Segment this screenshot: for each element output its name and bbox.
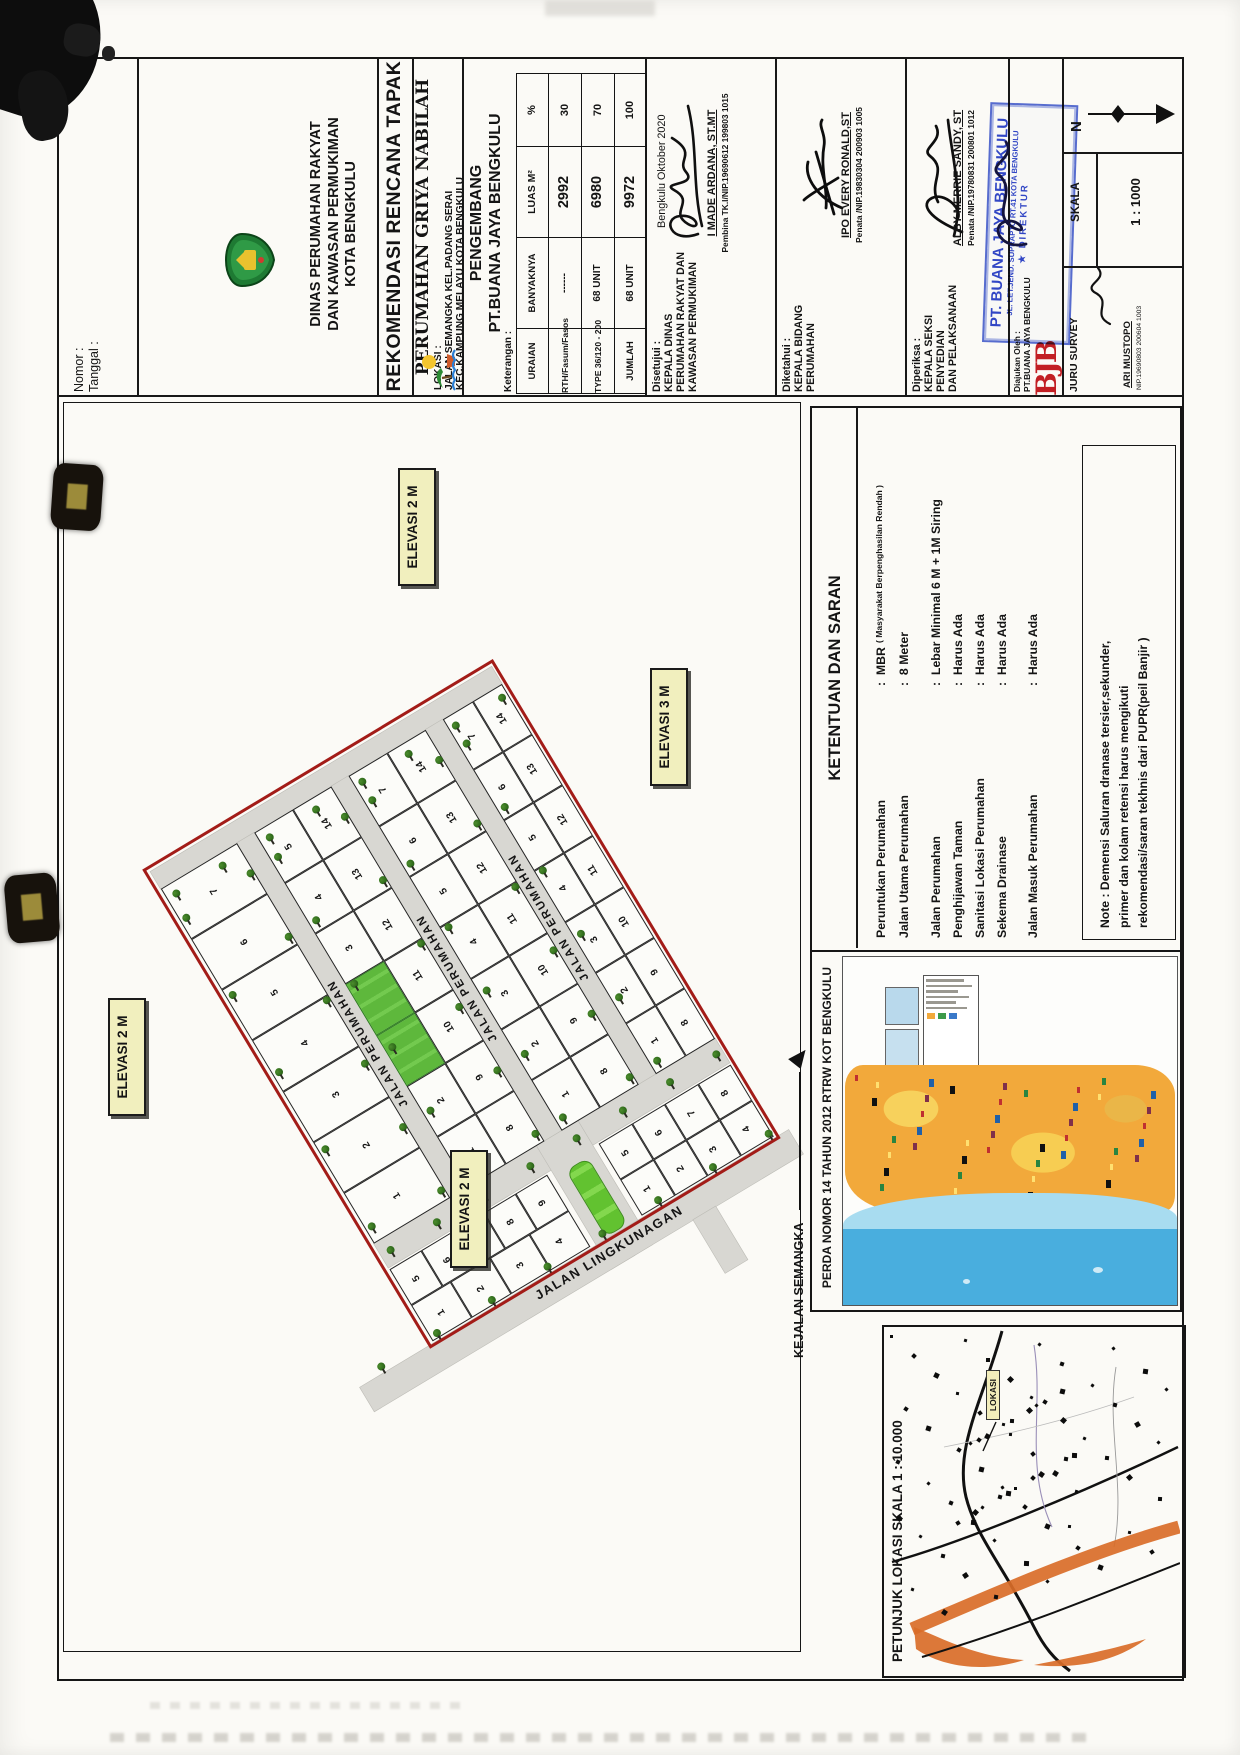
item-label: Peruntukan Perumahan [874, 686, 889, 938]
scale-value: 1 : 1000 [1128, 152, 1143, 252]
signer-nip: Pembina TK.I/NIP.19690612 199803 1015 [720, 64, 731, 282]
landuse-speck [929, 1079, 934, 1087]
divider [856, 406, 858, 948]
building-dot [964, 1339, 968, 1343]
table-cell: 68 UNIT [582, 238, 615, 329]
rtrw-sea [843, 1229, 1177, 1305]
ketentuan-item: Jalan Utama Perumahan : 8 Meter [897, 423, 912, 938]
building-dot [896, 1515, 903, 1522]
ketentuan-item: Jalan Perumahan : Lebar Minimal 6 M + 1M… [929, 423, 944, 938]
document-number-block: Nomor : Tanggal : [72, 302, 102, 392]
building-dot [971, 1520, 976, 1525]
sig-role: PERUMAHAN RAKYAT DAN [676, 240, 688, 392]
location-map-buildings [884, 1327, 1180, 1672]
building-dot [980, 1505, 984, 1509]
building-dot [948, 1500, 953, 1505]
building-dot [941, 1554, 946, 1559]
table-cell: TYPE 36/120 - 200 [582, 329, 615, 394]
divider [377, 57, 379, 395]
landuse-speck [999, 1099, 1002, 1105]
building-dot [992, 1538, 996, 1542]
building-dot [890, 1335, 893, 1338]
building-dot [1126, 1474, 1133, 1481]
building-dot [1059, 1361, 1064, 1366]
divider [137, 57, 139, 395]
building-dot [1009, 1433, 1012, 1436]
landuse-speck [921, 1111, 924, 1117]
building-dot [998, 1495, 1003, 1500]
building-dot [956, 1392, 959, 1395]
landuse-speck [995, 1115, 1000, 1123]
developer-label: PENGEMBANG [467, 56, 486, 390]
landuse-speck [1139, 1139, 1144, 1147]
landuse-speck [1040, 1144, 1045, 1152]
agency-line: KOTA BENGKULU [343, 58, 361, 390]
signer-nip: Penata /NIP.19780831 200801 1012 [966, 64, 977, 292]
city-emblem-box [224, 228, 276, 292]
building-dot [962, 1572, 969, 1579]
landuse-speck [1106, 1180, 1111, 1188]
keterangan-label: Keterangan : [503, 300, 515, 392]
lokasi-line: KEC.KAMPUNG MELAYU KOTA BENGKULU [455, 60, 466, 390]
building-dot [1134, 1421, 1141, 1428]
landuse-speck [872, 1098, 877, 1106]
sig-role: PENYEDIAN [936, 230, 948, 392]
signer-imade: I MADE ARDANA, ST.MT Pembina TK.I/NIP.19… [706, 64, 730, 282]
landuse-speck [1036, 1160, 1040, 1167]
island-dot [1093, 1267, 1103, 1273]
landuse-speck [1102, 1078, 1106, 1085]
note-text: Note : Demensi Saluran dranase tersier,s… [1096, 458, 1153, 928]
building-dot [955, 1520, 961, 1526]
agency-line: DINAS PERUMAHAN RAKYAT [308, 58, 326, 390]
sig-role: PERUMAHAN [806, 240, 818, 392]
building-dot [926, 1481, 930, 1485]
building-dot [903, 1406, 909, 1412]
landuse-speck [1147, 1107, 1151, 1114]
compass-label: N [1068, 92, 1086, 132]
building-dot [1029, 1395, 1033, 1399]
table-cell: 6980 [582, 147, 615, 238]
signature-director [986, 118, 1047, 258]
building-dot [1007, 1376, 1014, 1383]
agency-line: DAN KAWASAN PERMUKIMAN [326, 58, 344, 390]
item-value: Lebar Minimal 6 M + 1M Siring [929, 499, 944, 675]
building-dot [1030, 1451, 1036, 1457]
landuse-speck [954, 1188, 957, 1194]
elevation-badge: ELEVASI 2 M [398, 468, 436, 586]
building-dot [1060, 1417, 1067, 1424]
landuse-speck [876, 1082, 879, 1088]
item-label: Jalan Utama Perumahan [897, 686, 912, 938]
item-value: Harus Ada [951, 614, 966, 675]
building-dot [1083, 1437, 1087, 1441]
lokasi-line: JALAN SEMANGKA KEL.PADANG SERAI [444, 60, 455, 390]
building-dot [1002, 1423, 1006, 1427]
semangka-leader-line [799, 1072, 801, 1210]
ghost-text-artifact [150, 1702, 470, 1709]
sig-role: KEPALA SEKSI [924, 230, 936, 392]
elevation-badge: ELEVASI 2 M [450, 1150, 488, 1268]
table-cell: 30 [549, 74, 582, 147]
building-dot [911, 1353, 917, 1359]
col-header: % [517, 74, 549, 147]
building-dot [911, 1588, 915, 1592]
building-dot [1105, 1456, 1109, 1460]
signature-surveyor [1086, 260, 1121, 332]
titleblock-bottom-border [57, 395, 1183, 397]
building-dot [1143, 1369, 1149, 1375]
building-dot [1156, 1440, 1160, 1444]
building-dot [1044, 1523, 1051, 1530]
scanned-site-plan-document: Nomor : Tanggal : DINAS PERUMAHAN RAKYAT… [0, 0, 1240, 1755]
building-dot [978, 1466, 984, 1472]
table-cell: 70 [582, 74, 615, 147]
building-dot [895, 1459, 900, 1464]
landuse-speck [1069, 1119, 1073, 1126]
item-label: Sekema Drainase [995, 686, 1010, 938]
landuse-speck [991, 1131, 995, 1138]
building-dot [1064, 1457, 1069, 1462]
ketentuan-item: Peruntukan Perumahan : MBR ( Masyarakat … [874, 423, 889, 938]
surveyor-nip: NIP.19690803 200604 1003 [1136, 270, 1144, 390]
building-dot [1010, 1419, 1014, 1423]
note-line: rekomendasi/saran tekhnis dari PUPR(peil… [1134, 458, 1153, 928]
item-label: Jalan Perumahan [929, 686, 944, 938]
building-dot [1024, 1561, 1029, 1566]
building-dot [1026, 1407, 1033, 1414]
landuse-speck [1143, 1123, 1146, 1129]
landuse-speck [925, 1095, 929, 1102]
ketentuan-title: KETENTUAN DAN SARAN [826, 418, 845, 938]
table-cell: RTH/Fasum/Fasos [549, 329, 582, 394]
approval-label-disetujui: Disetujui : KEPALA DINAS PERUMAHAN RAKYA… [652, 240, 699, 392]
table-cell: ------ [549, 238, 582, 329]
building-dot [972, 1509, 979, 1516]
building-dot [1037, 1342, 1041, 1346]
punch-mark-artifact [50, 462, 104, 531]
table-cell: 68 UNIT [615, 238, 647, 329]
landuse-speck [1061, 1151, 1066, 1159]
building-dot [1006, 1491, 1012, 1497]
building-dot [1111, 1346, 1115, 1350]
building-dot [1000, 1485, 1004, 1489]
building-dot [1030, 1475, 1036, 1481]
building-dot [1128, 1531, 1132, 1535]
item-value: 8 Meter [897, 632, 912, 675]
note-line: Note : Demensi Saluran dranase tersier,s… [1096, 458, 1115, 928]
sig-role: KAWASAN PERMUKIMAN [688, 240, 700, 392]
building-dot [1038, 1471, 1045, 1478]
signer-nip: Penata /NIP.19830304 200903 1005 [854, 64, 865, 286]
lokasi-label: LOKASI : [433, 60, 444, 390]
building-dot [925, 1425, 931, 1431]
building-dot [1014, 1487, 1017, 1490]
ghost-text-artifact [110, 1733, 1090, 1742]
building-dot [1164, 1387, 1168, 1391]
map-thumbnail [885, 987, 919, 1025]
scale-label: SKALA [1070, 152, 1084, 252]
document-title: REKOMENDASI RENCANA TAPAK [383, 60, 406, 392]
building-dot [1068, 1525, 1071, 1528]
agency-name: DINAS PERUMAHAN RAKYAT DAN KAWASAN PERMU… [308, 58, 361, 390]
landuse-speck [1135, 1155, 1139, 1162]
item-label: Sanitasi Lokasi Perumahan [973, 686, 988, 938]
map-thumbnail [885, 1029, 919, 1067]
col-header: BANYAKNYA [517, 238, 549, 329]
building-dot [1097, 1564, 1103, 1570]
north-arrow-icon [1086, 100, 1176, 128]
area-table-wrap: URAIAN BANYAKNYA LUAS M² % RTH/Fasum/Fas… [516, 78, 646, 394]
signer-name: ALBY MERRIE SANDY, ST [952, 64, 966, 292]
landuse-speck [966, 1140, 969, 1146]
building-dot [968, 1441, 972, 1445]
landuse-speck [888, 1152, 891, 1158]
signer-alby: ALBY MERRIE SANDY, ST Penata /NIP.197808… [952, 64, 976, 292]
punch-mark-artifact [3, 872, 61, 944]
building-dot [1052, 1470, 1059, 1477]
landuse-speck [1003, 1083, 1007, 1090]
building-dot [1090, 1383, 1094, 1387]
landuse-speck [958, 1172, 962, 1179]
landuse-speck [1098, 1094, 1101, 1100]
bengkulu-city-emblem [224, 228, 276, 292]
landuse-speck [1024, 1090, 1028, 1097]
building-dot [1113, 1403, 1118, 1408]
building-dot [976, 1437, 982, 1443]
location-block: LOKASI : JALAN SEMANGKA KEL.PADANG SERAI… [433, 60, 467, 390]
signature-imade [658, 96, 713, 246]
developer-block: PENGEMBANG PT.BUANA JAYA BENGKULU [467, 56, 505, 390]
landuse-speck [1032, 1176, 1035, 1182]
ketentuan-item: Sanitasi Lokasi Perumahan : Harus Ada [973, 423, 988, 938]
building-dot [1022, 1504, 1028, 1510]
semangka-label: KEJALAN SEMANGKA [792, 1216, 807, 1358]
tanggal-label: Tanggal : [87, 302, 102, 392]
item-value: Harus Ada [973, 614, 988, 675]
building-dot [977, 1410, 983, 1416]
landuse-speck [1110, 1164, 1113, 1170]
landuse-speck [1077, 1087, 1080, 1093]
signer-name: IPO EVERY RONALD,ST [840, 64, 854, 286]
surveyor-label: JURU SURVEY [1068, 268, 1080, 392]
project-title: PERUMAHAN GRIYA NABILAH [413, 62, 433, 392]
building-dot [984, 1433, 991, 1440]
lokasi-tag: LOKASI [986, 1370, 1000, 1420]
island-dot [963, 1279, 970, 1284]
building-dot [956, 1447, 961, 1452]
landuse-speck [892, 1136, 896, 1143]
landuse-speck [884, 1168, 889, 1176]
table-cell: 9972 [615, 147, 647, 238]
note-line: primer dan kolam retensi harus mengikuti [1115, 458, 1134, 928]
landuse-speck [962, 1156, 967, 1164]
divider [905, 57, 907, 395]
building-dot [1045, 1579, 1049, 1583]
divider [1096, 152, 1098, 266]
ketentuan-item: Sekema Drainase : Harus Ada [995, 423, 1010, 938]
elevation-badge: ELEVASI 2 M [108, 998, 146, 1116]
scan-smudge [102, 46, 115, 61]
elevation-badge: ELEVASI 3 M [650, 668, 688, 786]
building-dot [1072, 1453, 1077, 1458]
building-dot [1158, 1497, 1162, 1501]
bjb-logo: BJB [1030, 338, 1063, 396]
landuse-speck [950, 1086, 955, 1094]
landuse-speck [917, 1127, 922, 1135]
signer-name: I MADE ARDANA, ST.MT [706, 64, 720, 282]
ketentuan-item: Jalan Masuk Perumahan : Harus Ada [1026, 423, 1041, 938]
building-dot [1075, 1490, 1079, 1494]
ketentuan-item: Penghijawan Taman : Harus Ada [951, 423, 966, 938]
beach-logo-icon [417, 346, 457, 392]
landuse-speck [855, 1075, 858, 1081]
col-header: LUAS M² [517, 147, 549, 238]
item-value: Harus Ada [995, 614, 1010, 675]
divider [775, 57, 777, 395]
sig-role: KEPALA BIDANG [794, 240, 806, 392]
item-value: MBR [874, 647, 889, 675]
landuse-speck [880, 1184, 884, 1191]
landuse-speck [987, 1147, 990, 1153]
building-dot [941, 1609, 948, 1616]
building-dot [1042, 1399, 1047, 1404]
rtrw-map [842, 956, 1178, 1306]
item-note: ( Masyarakat Berpenghasilan Rendah ) [874, 485, 889, 643]
table-cell: 100 [615, 74, 647, 147]
nomor-label: Nomor : [72, 302, 87, 392]
map-legend [923, 975, 979, 1075]
rtrw-label: PERDA NOMOR 14 TAHUN 2012 RTRW KOT BENGK… [820, 955, 834, 1300]
landuse-speck [1065, 1135, 1068, 1141]
building-dot [918, 1534, 922, 1538]
landuse-speck [1073, 1103, 1078, 1111]
table-cell: JUMLAH [615, 329, 647, 394]
approval-label-diketahui: Diketahui : KEPALA BIDANG PERUMAHAN [782, 240, 818, 392]
building-dot [1149, 1549, 1155, 1555]
building-dot [933, 1372, 940, 1379]
sig-role: KEPALA DINAS [664, 240, 676, 392]
item-label: Penghijawan Taman [951, 686, 966, 938]
signer-ipo: IPO EVERY RONALD,ST Penata /NIP.19830304… [840, 64, 864, 286]
landuse-speck [1151, 1091, 1156, 1099]
landuse-speck [1114, 1148, 1118, 1155]
building-dot [986, 1358, 990, 1362]
item-label: Jalan Masuk Perumahan [1026, 686, 1041, 938]
surveyor-name: ARI MUSTOPO [1122, 280, 1133, 388]
table-cell: 2992 [549, 147, 582, 238]
landuse-speck [913, 1143, 917, 1150]
scan-smudge [545, 0, 655, 16]
building-dot [1075, 1545, 1081, 1551]
area-table: URAIAN BANYAKNYA LUAS M² % RTH/Fasum/Fas… [516, 73, 647, 394]
building-dot [994, 1595, 999, 1600]
beach-logo-box [417, 346, 459, 392]
building-dot [1034, 1403, 1038, 1407]
building-dot [1059, 1388, 1065, 1394]
item-value: Harus Ada [1026, 614, 1041, 675]
col-header: URAIAN [517, 329, 549, 394]
